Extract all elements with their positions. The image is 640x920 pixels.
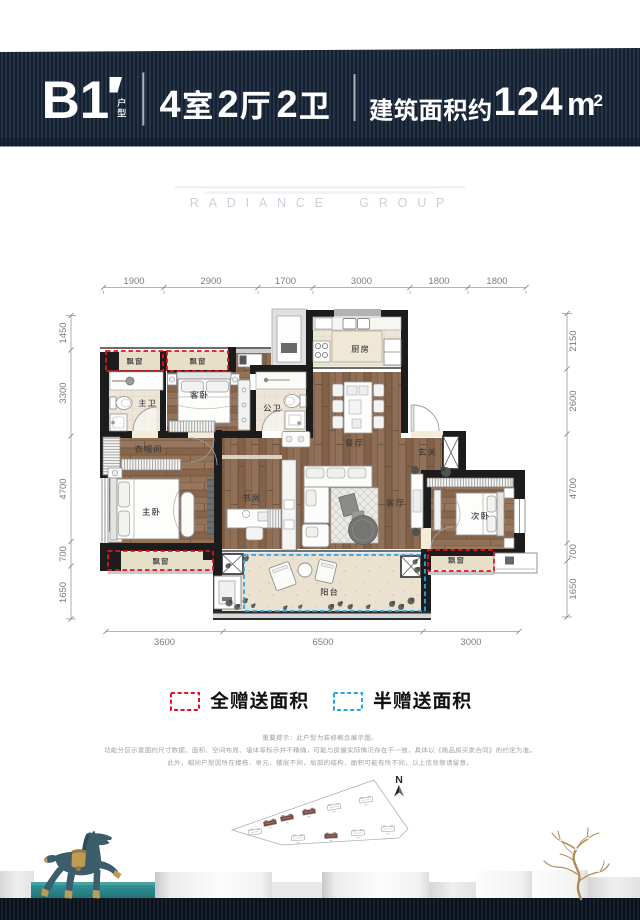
- svg-text:6500: 6500: [312, 637, 333, 648]
- svg-text:4: 4: [160, 84, 181, 126]
- svg-text:1800: 1800: [428, 276, 449, 287]
- svg-text:B1: B1: [42, 71, 110, 130]
- svg-text:4700: 4700: [568, 478, 579, 499]
- svg-text:RADIANCE GROUP: RADIANCE GROUP: [190, 196, 454, 210]
- svg-text:1800: 1800: [486, 276, 507, 287]
- svg-text:3300: 3300: [58, 382, 69, 403]
- svg-text:2150: 2150: [568, 330, 579, 351]
- svg-text:700: 700: [568, 544, 579, 560]
- svg-text:1450: 1450: [58, 322, 69, 343]
- svg-text:2: 2: [277, 84, 298, 126]
- svg-text:3600: 3600: [154, 637, 175, 648]
- svg-text:700: 700: [58, 546, 69, 562]
- svg-text:2900: 2900: [200, 276, 221, 287]
- svg-text:3000: 3000: [460, 637, 481, 648]
- svg-text:2: 2: [594, 91, 603, 110]
- svg-text:N: N: [395, 774, 403, 786]
- svg-text:1700: 1700: [275, 276, 296, 287]
- svg-text:1650: 1650: [58, 582, 69, 603]
- svg-text:124: 124: [494, 80, 564, 124]
- svg-text:3000: 3000: [351, 276, 372, 287]
- svg-text:m: m: [567, 86, 595, 122]
- svg-text:2: 2: [218, 84, 239, 126]
- svg-text:1900: 1900: [123, 276, 144, 287]
- svg-text:4700: 4700: [58, 478, 69, 499]
- svg-text:1650: 1650: [568, 578, 579, 599]
- svg-text:2600: 2600: [568, 390, 579, 411]
